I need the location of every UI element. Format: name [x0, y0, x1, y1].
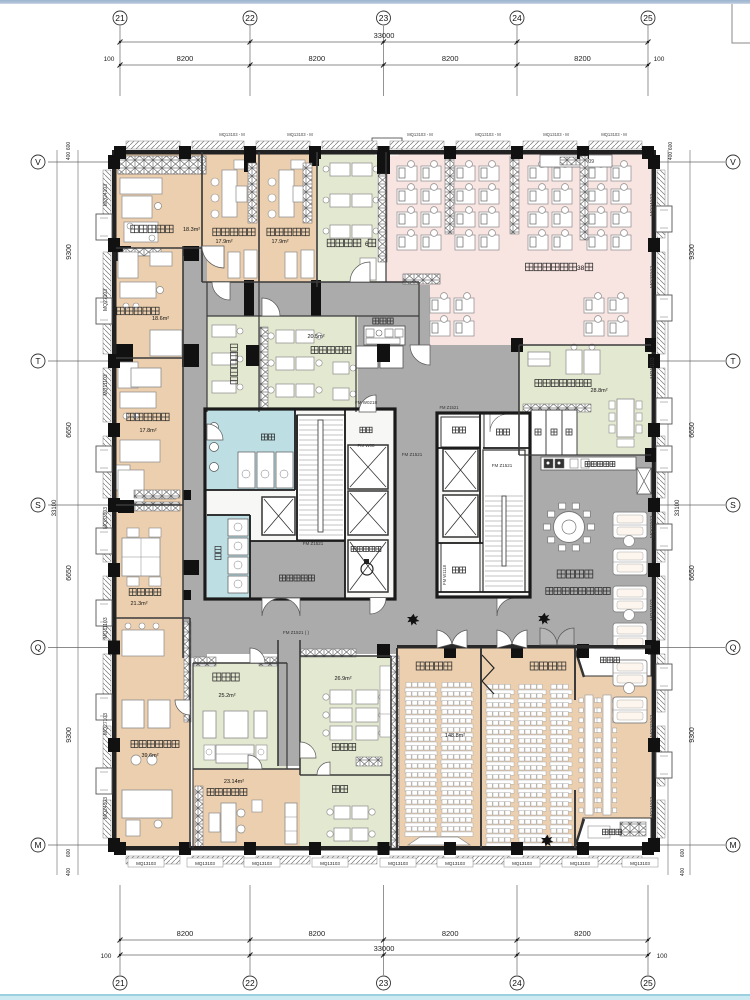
svg-text:8200: 8200	[442, 54, 459, 63]
svg-text:25.2m²: 25.2m²	[218, 693, 235, 699]
svg-text:MQ24103: MQ24103	[103, 184, 109, 206]
svg-text:24: 24	[512, 978, 522, 988]
svg-text:S: S	[35, 500, 41, 510]
svg-text:6650: 6650	[66, 565, 73, 581]
svg-text:33100: 33100	[52, 499, 58, 516]
svg-text:400: 400	[66, 868, 72, 877]
svg-text:MQ13103: MQ13103	[512, 861, 532, 866]
svg-text:MQ27103: MQ27103	[103, 289, 109, 311]
svg-text:V: V	[730, 157, 736, 167]
svg-text:Q: Q	[35, 643, 42, 653]
svg-text:600: 600	[66, 142, 72, 151]
svg-text:600: 600	[66, 849, 72, 858]
svg-text:6650: 6650	[66, 422, 73, 438]
svg-text:MQ11103: MQ11103	[103, 374, 109, 395]
svg-text:MQ24103: MQ24103	[103, 797, 109, 819]
svg-text:FM Z1521: FM Z1521	[303, 541, 324, 546]
svg-text:V: V	[35, 157, 41, 167]
svg-text:9300: 9300	[66, 244, 73, 260]
svg-text:M: M	[729, 840, 736, 850]
svg-text:MQ13103: MQ13103	[320, 861, 340, 866]
svg-text:23: 23	[379, 13, 389, 23]
svg-text:T: T	[35, 356, 40, 366]
svg-text:8200: 8200	[177, 54, 194, 63]
svg-text:22: 22	[245, 978, 255, 988]
svg-text:38: 38	[577, 265, 585, 272]
svg-text:FM Z1521: FM Z1521	[439, 405, 459, 410]
svg-text:8200: 8200	[308, 54, 325, 63]
svg-text:600: 600	[668, 142, 674, 151]
svg-text:M: M	[34, 840, 41, 850]
svg-text:MQ13103 - M: MQ13103 - M	[219, 132, 245, 137]
svg-text:17.8m²: 17.8m²	[139, 428, 156, 434]
svg-text:MQ27103: MQ27103	[650, 266, 656, 288]
svg-text:Q: Q	[730, 643, 737, 653]
svg-text:MQ13103: MQ13103	[252, 861, 272, 866]
svg-text:21: 21	[115, 13, 125, 23]
svg-text:400: 400	[680, 868, 686, 877]
svg-text:MQ24103: MQ24103	[650, 194, 656, 216]
svg-text:400: 400	[66, 152, 72, 161]
svg-text:MQ13103: MQ13103	[388, 861, 408, 866]
svg-text:8200: 8200	[574, 929, 591, 938]
svg-text:18.6m²: 18.6m²	[152, 316, 169, 322]
svg-text:MQ11103: MQ11103	[650, 599, 656, 620]
svg-text:20.5m²: 20.5m²	[307, 334, 324, 340]
svg-text:MQ13103: MQ13103	[136, 861, 156, 866]
svg-text:MQ11103: MQ11103	[103, 617, 109, 638]
svg-text:FM W0218: FM W0218	[355, 400, 378, 405]
svg-text:MQ13103: MQ13103	[445, 861, 465, 866]
svg-text:FM Z1521 ( ): FM Z1521 ( )	[283, 630, 310, 635]
svg-text:S: S	[730, 500, 736, 510]
svg-text:FM Z1521: FM Z1521	[402, 452, 423, 457]
svg-text:100: 100	[104, 56, 115, 63]
svg-text:6650: 6650	[689, 565, 696, 581]
svg-text:18.3m²: 18.3m²	[183, 227, 200, 233]
svg-text:MQ13103: MQ13103	[195, 861, 215, 866]
svg-text:25: 25	[643, 978, 653, 988]
svg-text:22: 22	[245, 13, 255, 23]
svg-text:MQ27103: MQ27103	[103, 713, 109, 735]
svg-text:9300: 9300	[689, 727, 696, 743]
svg-text:9300: 9300	[689, 244, 696, 260]
svg-text:21.3m²: 21.3m²	[130, 601, 147, 607]
svg-text:MQ13103 - M: MQ13103 - M	[543, 132, 569, 137]
svg-text:MQ24103: MQ24103	[650, 797, 656, 819]
svg-text:FM Z1521: FM Z1521	[492, 463, 513, 468]
svg-text:MQ13103 - M: MQ13103 - M	[407, 132, 433, 137]
svg-text:33000: 33000	[374, 944, 395, 953]
svg-text:8200: 8200	[308, 929, 325, 938]
svg-text:148.8m²: 148.8m²	[445, 733, 465, 739]
svg-text:8200: 8200	[442, 929, 459, 938]
svg-text:MQ13103: MQ13103	[570, 861, 590, 866]
svg-text:MQ13103 - M: MQ13103 - M	[601, 132, 627, 137]
svg-text:100: 100	[654, 56, 665, 63]
svg-text:23: 23	[379, 978, 389, 988]
svg-text:100: 100	[101, 953, 112, 960]
svg-text:9300: 9300	[66, 727, 73, 743]
svg-text:26.9m²: 26.9m²	[334, 676, 351, 682]
svg-text:24: 24	[512, 13, 522, 23]
svg-text:17.9m²: 17.9m²	[271, 239, 288, 245]
svg-text:MQ13103 - M: MQ13103 - M	[287, 132, 313, 137]
svg-text:23.14m²: 23.14m²	[224, 779, 244, 785]
svg-text:FM W1118: FM W1118	[442, 564, 447, 585]
svg-text:MQ13103 - M: MQ13103 - M	[475, 132, 501, 137]
svg-text:MQ27103: MQ27103	[650, 715, 656, 737]
svg-text:MQ13103: MQ13103	[630, 861, 650, 866]
svg-text:600: 600	[680, 849, 686, 858]
svg-text:8200: 8200	[177, 929, 194, 938]
svg-text:39.6m²: 39.6m²	[141, 753, 158, 759]
svg-text:MQ11103: MQ11103	[650, 357, 656, 378]
svg-text:17.9m²: 17.9m²	[215, 239, 232, 245]
svg-text:28.8m²: 28.8m²	[590, 388, 607, 394]
svg-text:FM W08: FM W08	[357, 443, 374, 448]
svg-text:MQ83103: MQ83103	[103, 507, 109, 529]
svg-text:25: 25	[643, 13, 653, 23]
svg-text:MQ83103: MQ83103	[650, 516, 656, 538]
svg-text:6650: 6650	[689, 422, 696, 438]
svg-text:21: 21	[115, 978, 125, 988]
svg-text:T: T	[730, 356, 735, 366]
svg-text:8200: 8200	[574, 54, 591, 63]
svg-text:400: 400	[668, 152, 674, 161]
svg-text:33000: 33000	[374, 31, 395, 40]
svg-text:33100: 33100	[675, 499, 681, 516]
svg-text:100: 100	[657, 953, 668, 960]
